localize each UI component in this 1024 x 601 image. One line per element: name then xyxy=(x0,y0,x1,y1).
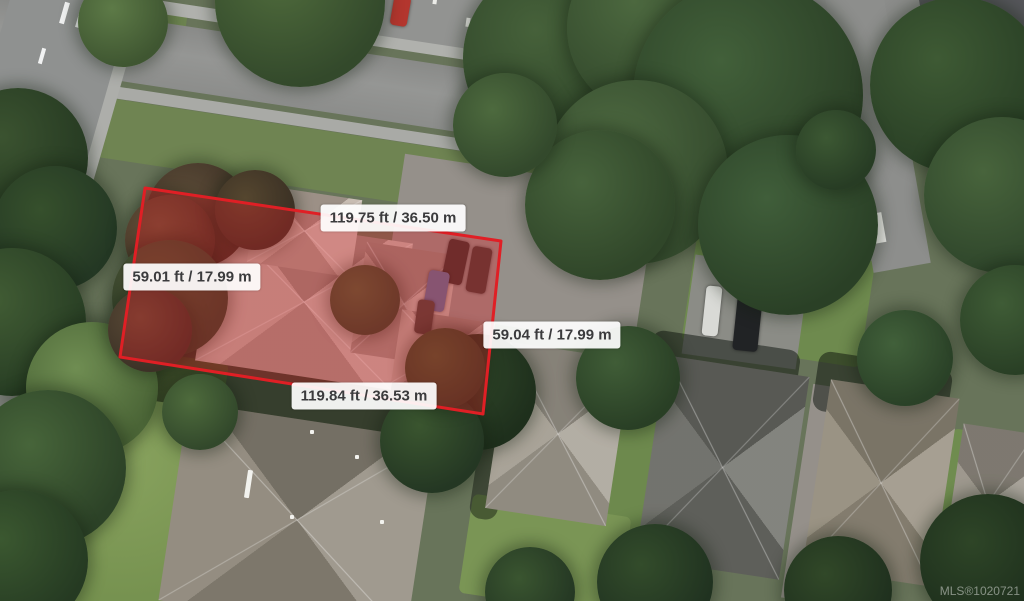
measurement-label-bottom: 119.84 ft / 36.53 m xyxy=(292,383,437,410)
lot-outline xyxy=(0,0,1024,601)
measurement-label-top: 119.75 ft / 36.50 m xyxy=(321,205,466,232)
satellite-map: 119.75 ft / 36.50 m 59.01 ft / 17.99 m 5… xyxy=(0,0,1024,601)
measurement-label-left: 59.01 ft / 17.99 m xyxy=(123,264,260,291)
measurement-label-right: 59.04 ft / 17.99 m xyxy=(483,322,620,349)
mls-watermark: MLS®1020721 xyxy=(940,584,1020,598)
